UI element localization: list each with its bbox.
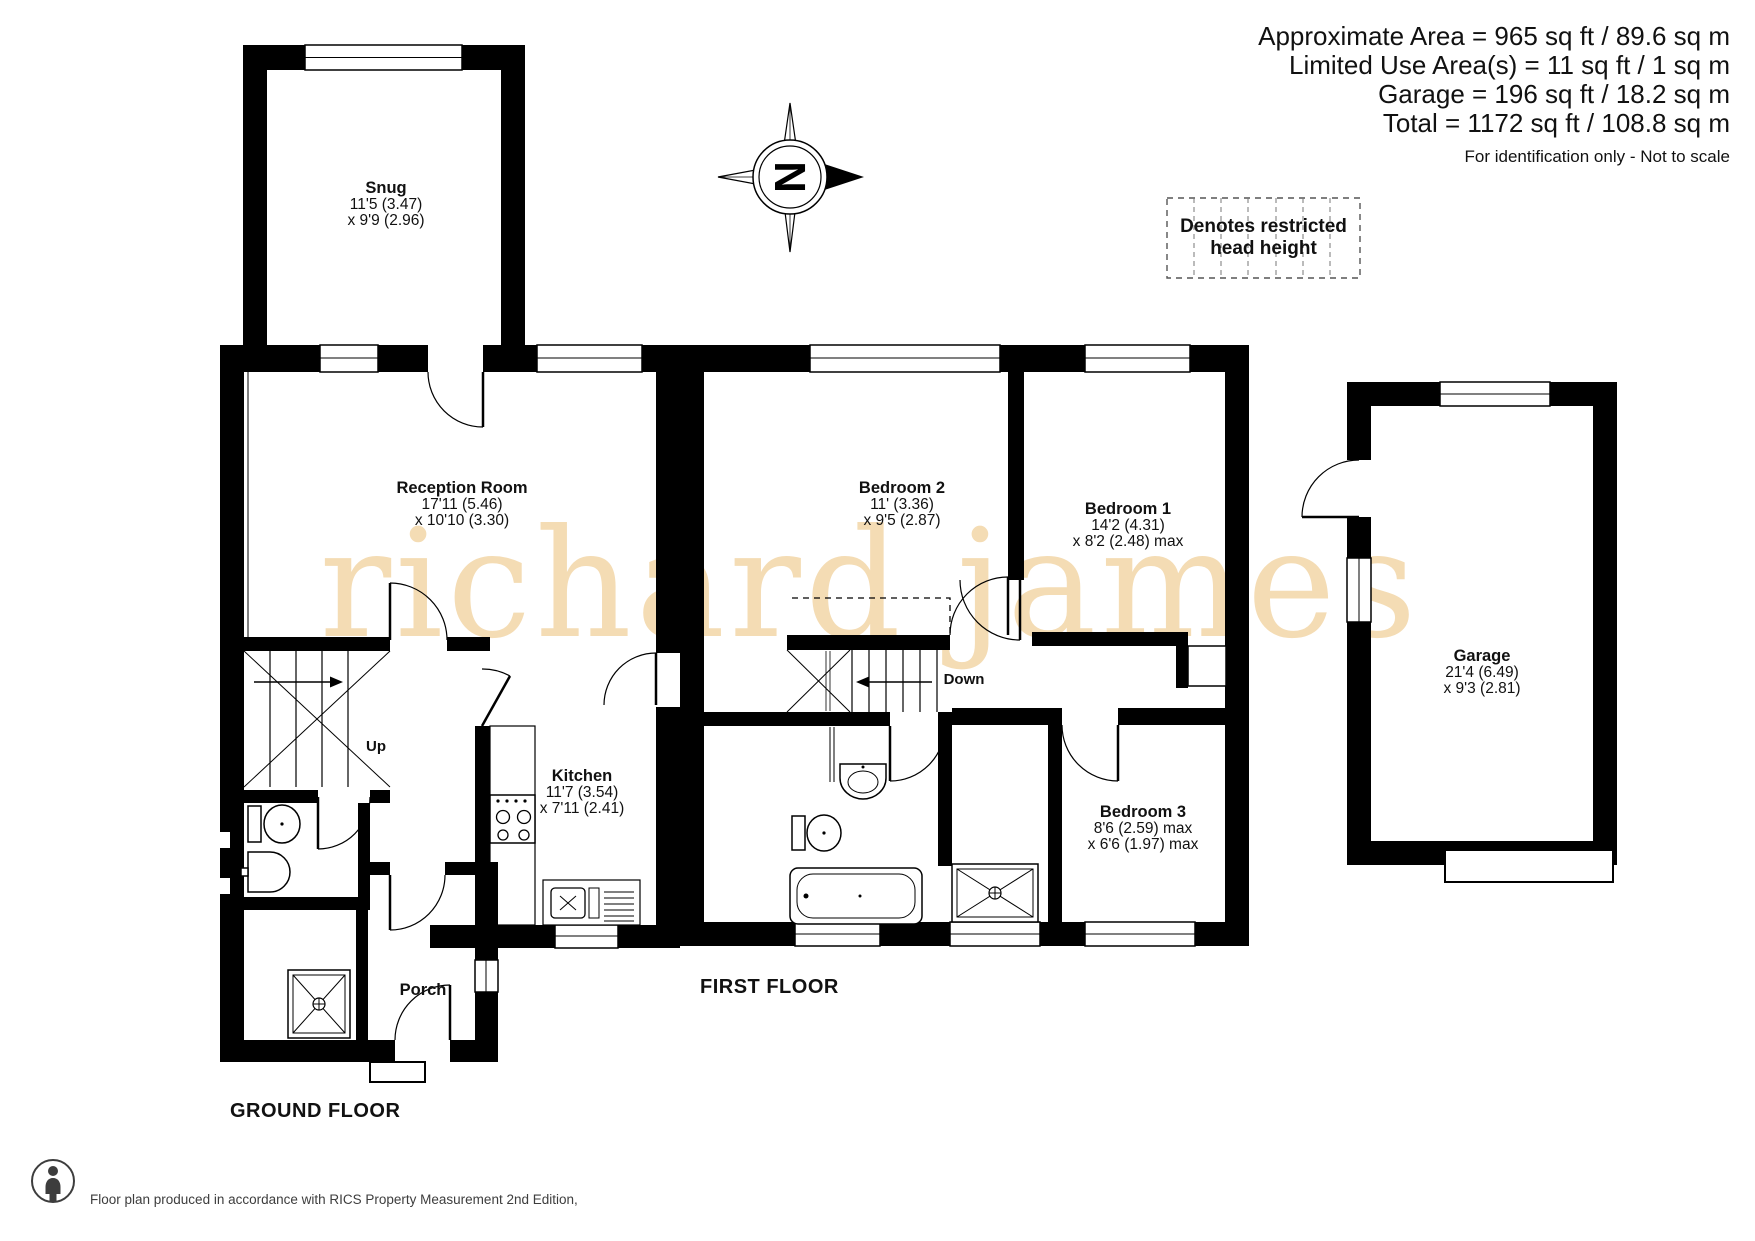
porch-label: Porch: [400, 982, 447, 999]
garage-door: [1445, 850, 1613, 882]
limited-use-area: Limited Use Area(s) = 11 sq ft / 1 sq m: [1258, 51, 1730, 80]
wc-toilet-icon: [248, 805, 300, 843]
bathroom-basin-icon: [840, 764, 886, 799]
first-floor-walls: [680, 345, 1249, 946]
reception-room-label: Reception Room 17'11 (5.46) x 10'10 (3.3…: [396, 480, 527, 530]
snug-label: Snug 11'5 (3.47) x 9'9 (2.96): [347, 180, 424, 230]
door-arc: [482, 669, 510, 676]
restricted-head-height-line: [792, 598, 950, 633]
rics-person-logo-icon: [30, 1155, 76, 1207]
legend-line1: Denotes restricted: [1180, 216, 1347, 238]
legend-line2: head height: [1210, 238, 1317, 260]
first-floor-shower-icon: [952, 864, 1038, 922]
bath-icon: [790, 868, 922, 924]
door-arc: [890, 726, 945, 781]
stairs-up-label: Up: [366, 738, 386, 755]
first-floor-stairs: [787, 650, 937, 712]
door-arc: [604, 653, 656, 705]
bedroom3-label: Bedroom 3 8'6 (2.59) max x 6'6 (1.97) ma…: [1088, 804, 1199, 854]
bathroom-fixtures: [790, 727, 1038, 924]
ground-floor-stairs: [244, 651, 390, 787]
total-area: Total = 1172 sq ft / 108.8 sq m: [1258, 109, 1730, 138]
down-arrow-head: [856, 677, 869, 688]
restricted-head-height-legend: Denotes restricted head height: [1167, 198, 1360, 278]
footer-text: Floor plan produced in accordance with R…: [90, 1155, 712, 1241]
floorplan-page: richard james: [0, 0, 1755, 1241]
stairs-down-label: Down: [944, 671, 985, 688]
garage-label: Garage 21'4 (6.49) x 9'3 (2.81): [1443, 648, 1520, 698]
first-floor-door-leaves: [890, 577, 1118, 781]
area-summary: Approximate Area = 965 sq ft / 89.6 sq m…: [1258, 22, 1730, 171]
compass-rose: N: [718, 103, 864, 252]
built-in-cupboard: [1188, 646, 1226, 686]
hob-icon: [490, 795, 535, 843]
bedroom1-label: Bedroom 1 14'2 (4.31) x 8'2 (2.48) max: [1073, 501, 1184, 551]
door-arc: [390, 583, 447, 640]
garage-area: Garage = 196 sq ft / 18.2 sq m: [1258, 80, 1730, 109]
approximate-area: Approximate Area = 965 sq ft / 89.6 sq m: [1258, 22, 1730, 51]
garage-openings: [1347, 382, 1613, 882]
identification-note: For identification only - Not to scale: [1258, 142, 1730, 171]
shower-icon: [288, 970, 350, 1038]
floorplan-drawing: N: [0, 0, 1755, 1241]
porch-step: [370, 1062, 425, 1082]
door-arc: [428, 372, 483, 427]
compass-north-letter: N: [765, 161, 814, 193]
garage-walls: [1347, 382, 1617, 865]
door-arc: [950, 577, 1008, 635]
door-arc: [390, 875, 445, 930]
footer-line1: Floor plan produced in accordance with R…: [90, 1191, 712, 1209]
wc-basin-icon: [241, 852, 290, 892]
ground-floor-title: GROUND FLOOR: [230, 1100, 400, 1123]
door-arc: [960, 580, 1020, 640]
kitchen-label: Kitchen 11'7 (3.54) x 7'11 (2.41): [540, 768, 625, 818]
footer: Floor plan produced in accordance with R…: [30, 1155, 712, 1241]
bedroom2-label: Bedroom 2 11' (3.36) x 9'5 (2.87): [859, 480, 945, 530]
up-arrow-head: [330, 677, 343, 688]
kitchen-sink-icon: [543, 880, 640, 925]
door-arc: [1062, 725, 1118, 781]
bathroom-toilet-icon: [792, 815, 841, 851]
first-floor-door-arcs: [890, 577, 1118, 781]
first-floor-title: FIRST FLOOR: [700, 976, 839, 999]
